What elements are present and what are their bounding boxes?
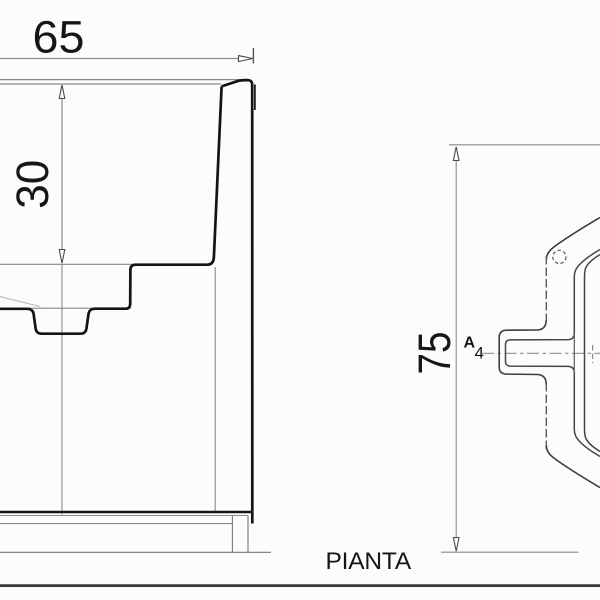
svg-text:65: 65 <box>33 12 85 63</box>
svg-text:30: 30 <box>7 160 58 209</box>
svg-text:75: 75 <box>409 332 460 375</box>
svg-text:PIANTA: PIANTA <box>326 548 412 575</box>
